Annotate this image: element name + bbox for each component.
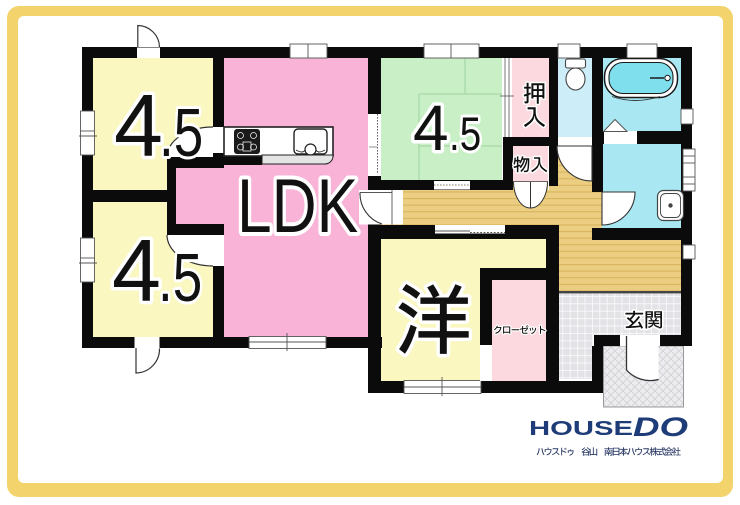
svg-text:.5: .5 xyxy=(449,108,481,160)
svg-text:LDK: LDK xyxy=(237,163,358,248)
svg-text:4: 4 xyxy=(114,76,163,175)
svg-text:4: 4 xyxy=(413,92,449,164)
svg-text:4: 4 xyxy=(112,221,161,320)
svg-text:DO: DO xyxy=(633,412,688,442)
svg-text:HOUSE: HOUSE xyxy=(529,417,633,440)
svg-text:.5: .5 xyxy=(158,240,202,316)
svg-text:.5: .5 xyxy=(159,95,203,171)
